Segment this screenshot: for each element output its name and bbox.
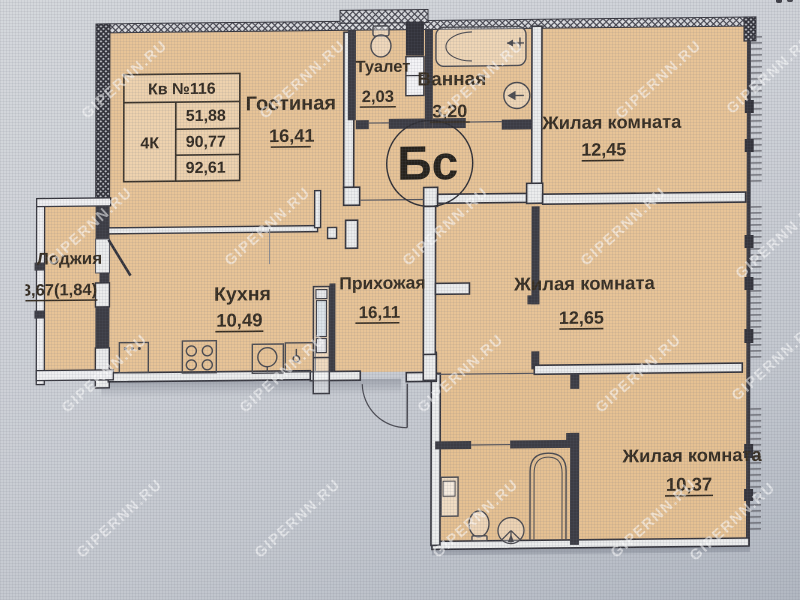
svg-text:12,45: 12,45 <box>581 139 626 159</box>
svg-text:Туалет: Туалет <box>355 58 410 77</box>
svg-text:4К: 4К <box>140 135 159 152</box>
svg-text:16,41: 16,41 <box>269 126 315 146</box>
svg-text:10,49: 10,49 <box>216 309 262 330</box>
svg-text:Жилая комната: Жилая комната <box>622 444 763 467</box>
svg-text:Бс: Бс <box>397 137 458 191</box>
svg-text:92,61: 92,61 <box>186 160 226 177</box>
svg-text:Кв №116: Кв №116 <box>148 81 216 99</box>
svg-text:16,11: 16,11 <box>359 303 401 322</box>
svg-text:12,65: 12,65 <box>559 308 604 328</box>
svg-text:Прихожая: Прихожая <box>339 272 425 293</box>
svg-text:2,03: 2,03 <box>362 88 394 106</box>
svg-text:Кухня: Кухня <box>214 283 271 306</box>
svg-text:90,77: 90,77 <box>186 134 226 151</box>
svg-text:51,88: 51,88 <box>186 108 226 125</box>
svg-text:3,67(1,84): 3,67(1,84) <box>25 281 97 300</box>
